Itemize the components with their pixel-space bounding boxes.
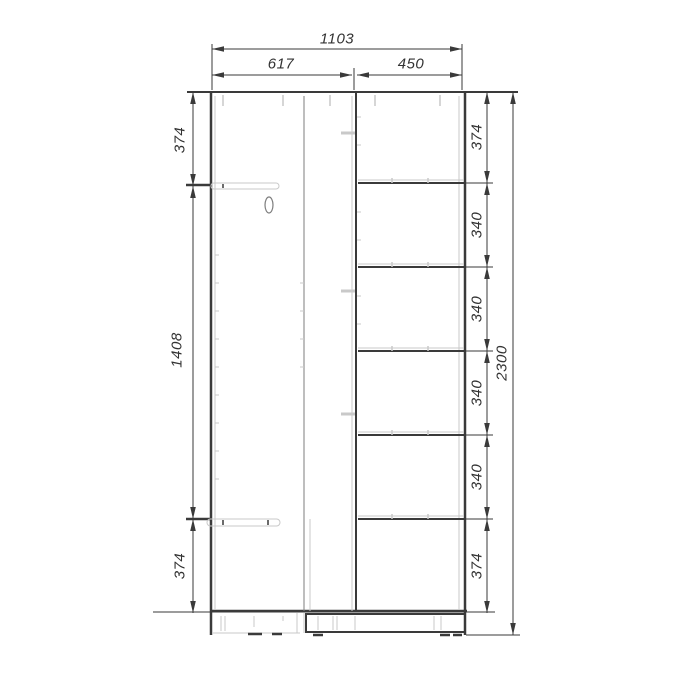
plinth-left-box [213, 613, 304, 634]
wardrobe-technical-drawing: 1103 617 450 374 1408 374 374 340 340 34… [0, 0, 700, 700]
center-divider [341, 92, 356, 611]
dim-overall-width: 1103 [320, 32, 354, 47]
dim-right-shelf-3: 340 [470, 296, 485, 323]
dim-left-top-shelf-height: 374 [173, 127, 188, 154]
cabinet-outline [153, 92, 518, 635]
door-overlap-line [304, 96, 310, 611]
dim-right-shelf-5: 340 [470, 464, 485, 491]
dim-right-shelf-2: 340 [470, 212, 485, 239]
dim-right-shelf-4: 340 [470, 380, 485, 407]
dim-left-section-width: 617 [268, 57, 295, 72]
left-compartment-shelves [186, 183, 280, 526]
dim-hanging-space-height: 1408 [170, 332, 185, 367]
dim-left-bottom-shelf-height: 374 [173, 553, 188, 580]
dim-right-shelf-6: 374 [470, 553, 485, 580]
plinth-right-box [305, 614, 466, 635]
dim-right-section-width: 450 [398, 57, 425, 72]
hanging-rail-oval [265, 197, 273, 213]
drawing-linework [0, 0, 700, 700]
dim-right-shelf-1: 374 [470, 124, 485, 151]
shelf-pin-ticks [215, 95, 440, 479]
dim-overall-height: 2300 [495, 345, 510, 380]
